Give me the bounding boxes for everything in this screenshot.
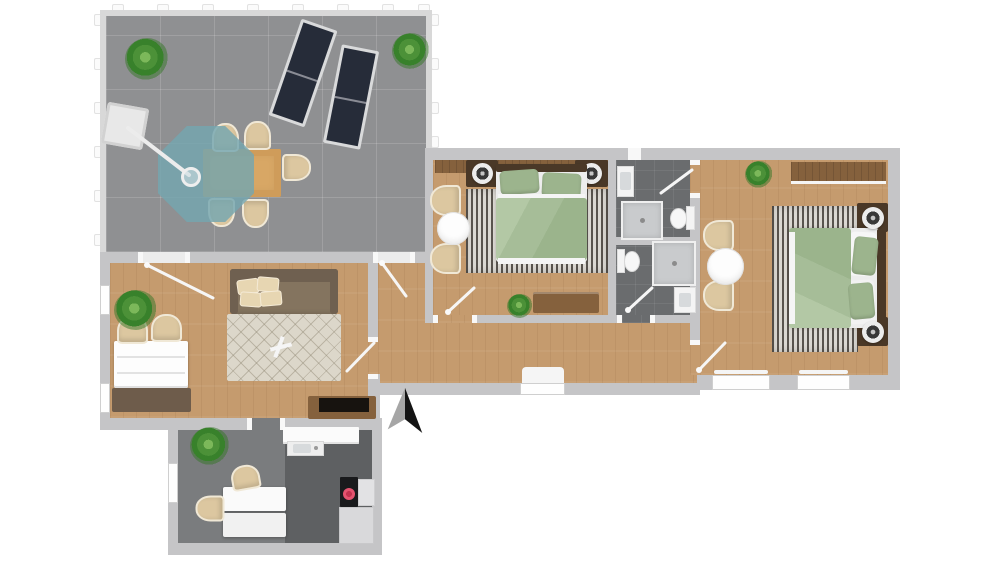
table-lamp [472,163,493,184]
door-jamb [368,374,378,379]
office-desk [223,487,286,511]
dining-chair [242,199,269,228]
bed-pillow [851,236,879,276]
shower-drain [672,261,677,266]
potted-plant [125,38,169,80]
door-jamb [690,193,700,198]
round-side-table [437,212,470,245]
window-living-left-upper [100,285,110,315]
potted-plant [190,427,230,465]
wall-wing-top [425,148,900,160]
desk-drawer-line [117,356,185,358]
bed-duvet [496,198,587,260]
shower-drain [640,218,645,223]
wall-living-top [190,252,373,263]
fence-post [431,136,439,148]
potted-plant [507,294,533,318]
corridor-floor [433,320,697,383]
fence-post [431,14,439,26]
window-sill [799,370,848,374]
bed-pillow [499,169,540,196]
table-lamp [862,207,884,229]
door-threshold [252,418,280,430]
sink-basin [620,172,631,190]
sofa-armrest [330,269,338,314]
bed-foot [789,232,795,324]
door-jamb [650,315,655,323]
parasol-hub [181,167,201,187]
door-threshold [690,165,700,193]
window-bedroom2-left [712,375,770,390]
bed-pillow [847,282,875,320]
kitchen-cabinet [358,479,375,506]
door-jamb [472,315,477,323]
living-desk [114,341,188,388]
desk-drawer-line [117,372,185,374]
sink-basin [679,293,691,307]
dark-mat [112,388,191,412]
window-sill [522,367,564,383]
armchair [703,280,734,311]
office-desk [223,513,286,537]
kitchen-cabinet [339,507,374,544]
bed-foot [498,258,585,264]
wall-living-right [368,263,378,342]
sideboard-front [791,181,886,184]
window-sill [714,370,768,374]
office-chair [196,496,225,522]
wall-bath-bottom [655,315,700,323]
window-office-left [168,463,178,503]
parasol-base [101,102,150,151]
window-bedroom2-right [797,375,850,390]
cooktop-burner [343,488,355,500]
wall-bedroom1-bottom [477,315,622,323]
door-threshold [690,345,700,375]
window-corridor [520,383,565,395]
potted-plant [392,33,430,69]
potted-plant [745,161,773,188]
north-arrow [387,387,423,433]
door-threshold [622,315,650,323]
floor-plan [0,0,1000,563]
sofa-cushion [259,290,282,307]
door-jamb [185,252,190,263]
wall-office-bottom [168,543,382,555]
table-lamp [862,321,884,343]
door-threshold [143,252,185,263]
wall-joint [628,148,641,160]
bed-duvet [789,228,851,328]
toilet [624,251,640,272]
faucet [314,446,318,450]
wall-bedroom1-left [425,160,433,323]
sink-basin [293,444,311,453]
round-side-table [707,248,744,285]
door-jamb [410,252,415,263]
fence-post [431,58,439,70]
sideboard [791,162,886,181]
door-threshold [368,342,378,374]
armchair [703,220,734,251]
dining-chair [244,121,271,150]
fence-post [431,102,439,114]
window-living-left-lower [100,383,110,413]
door-threshold [438,315,472,323]
potted-plant [114,290,158,330]
tv-screen [319,398,369,412]
dining-chair [282,154,311,181]
wooden-bench [533,292,599,313]
wall-wing-right [888,148,900,390]
armchair [430,243,461,274]
door-threshold [378,252,410,263]
toilet-tank [686,206,695,230]
toilet [670,208,687,229]
